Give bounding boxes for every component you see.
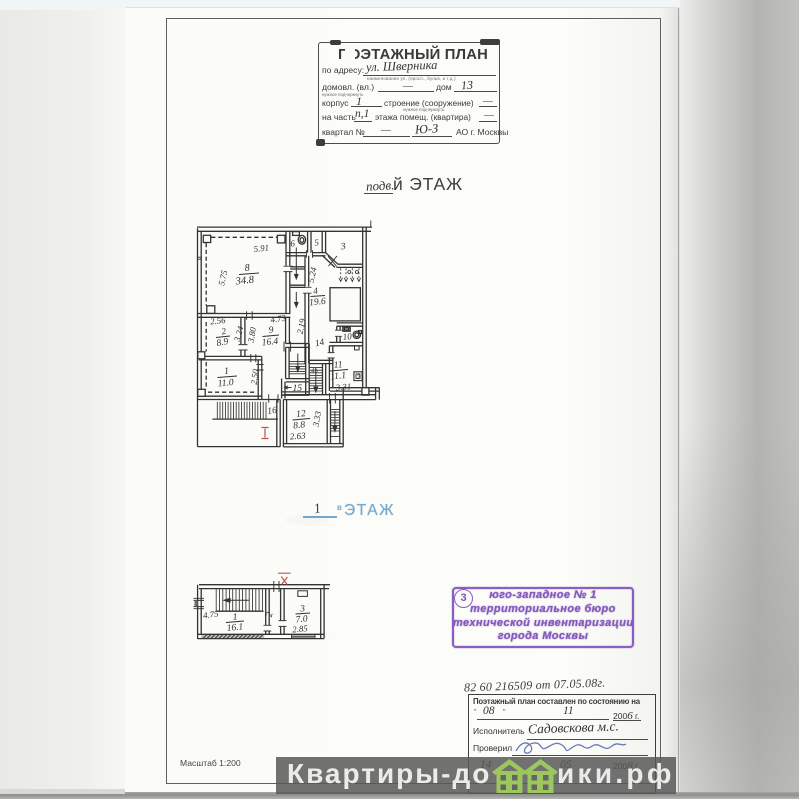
svg-text:12: 12: [296, 409, 307, 420]
svg-text:19.6: 19.6: [309, 297, 327, 309]
svg-text:3.33: 3.33: [310, 410, 323, 428]
svg-text:4.75: 4.75: [202, 608, 219, 620]
svg-text:45: 45: [310, 366, 319, 375]
svg-text:10: 10: [342, 331, 352, 342]
svg-text:2.19: 2.19: [295, 317, 308, 335]
svg-text:2.50: 2.50: [249, 368, 261, 385]
svg-text:5.91: 5.91: [253, 242, 269, 254]
svg-text:2: 2: [357, 374, 361, 381]
svg-text:2: 2: [265, 611, 276, 618]
svg-text:5.75: 5.75: [216, 269, 229, 287]
svg-text:5: 5: [314, 237, 320, 248]
svg-text:34.8: 34.8: [234, 275, 255, 288]
svg-text:2.85: 2.85: [292, 623, 309, 634]
svg-text:2.63: 2.63: [289, 430, 306, 441]
svg-text:16.4: 16.4: [261, 337, 279, 349]
svg-text:11.1: 11.1: [330, 371, 347, 383]
svg-text:8.9: 8.9: [216, 337, 230, 349]
svg-text:8: 8: [244, 263, 250, 274]
svg-text:16: 16: [267, 406, 278, 417]
svg-text:3: 3: [339, 242, 347, 253]
svg-text:11.0: 11.0: [217, 378, 234, 390]
svg-text:2: 2: [221, 326, 228, 337]
svg-text:9: 9: [268, 326, 274, 336]
svg-text:2.56: 2.56: [210, 315, 227, 327]
svg-text:4: 4: [313, 286, 319, 296]
svg-text:3.24: 3.24: [232, 324, 246, 343]
svg-text:16.1: 16.1: [226, 622, 244, 634]
svg-text:3.80: 3.80: [245, 326, 258, 344]
svg-text:1: 1: [224, 367, 230, 377]
svg-text:6: 6: [290, 238, 296, 249]
svg-text:5.24: 5.24: [306, 266, 319, 284]
svg-text:15: 15: [293, 384, 303, 394]
svg-text:11: 11: [333, 360, 343, 371]
svg-text:3.31: 3.31: [334, 381, 351, 392]
svg-text:14: 14: [314, 338, 326, 350]
svg-text:4.73: 4.73: [270, 313, 287, 325]
